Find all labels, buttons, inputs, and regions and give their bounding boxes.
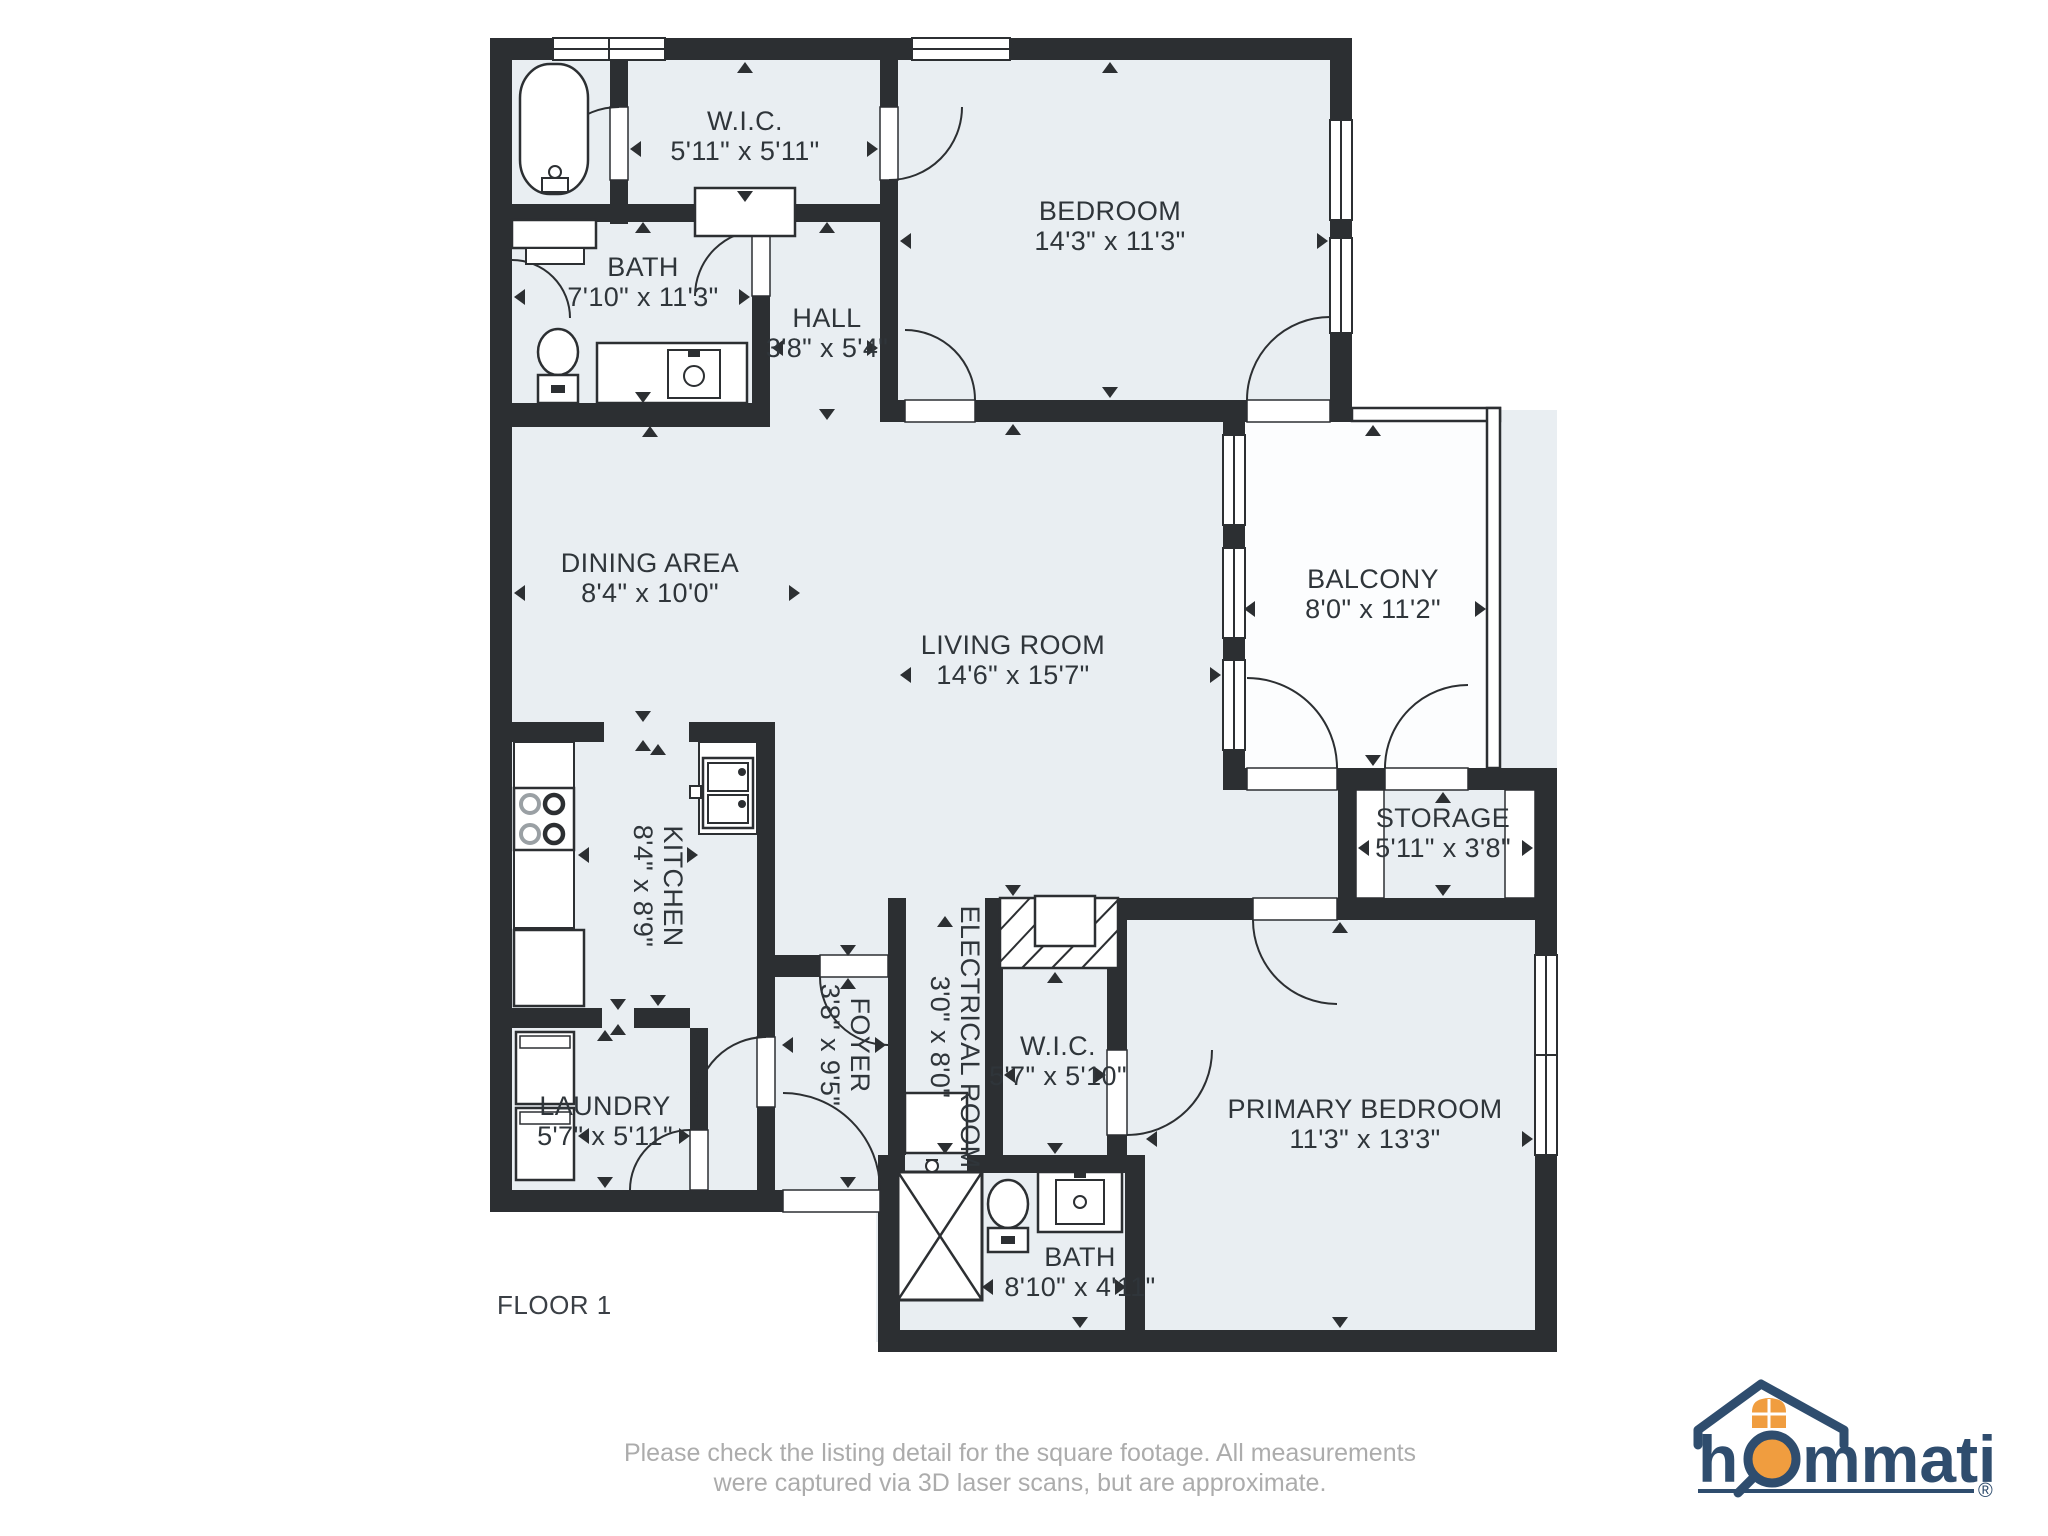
vanity-sink [1038, 1172, 1122, 1232]
kitchen-sink-icon [690, 742, 757, 834]
floorplan-page: h mmati ® W.I.C. 5'11" x 5'11" BEDROOM 1… [0, 0, 2048, 1536]
room-label-dining-area: DINING AREA 8'4" x 10'0" [561, 548, 739, 608]
footer-line-2: were captured via 3D laser scans, but ar… [714, 1469, 1327, 1497]
logo-text-mmati: mmati [1802, 1422, 1996, 1496]
footer-disclaimer: Please check the listing detail for the … [624, 1438, 1416, 1498]
room-label-bath-top: BATH 7'10" x 11'3" [567, 252, 718, 312]
room-label-balcony: BALCONY 8'0" x 11'2" [1305, 564, 1441, 624]
room-dims: 5'11" x 3'8" [1375, 833, 1511, 863]
room-name: LIVING ROOM [921, 630, 1105, 660]
room-label-foyer: FOYER 3'8" x 9'5" [815, 984, 875, 1106]
window-icon [1223, 660, 1245, 750]
room-name: STORAGE [1376, 803, 1510, 833]
room-dims: 5'7" x 5'10" [989, 1061, 1127, 1091]
floor-label: FLOOR 1 [497, 1290, 612, 1321]
logo-magnifier-icon [1738, 1435, 1796, 1493]
room-name: BEDROOM [1039, 196, 1181, 226]
room-dims: 11'3" x 13'3" [1227, 1124, 1502, 1154]
floor-plan-drawing: h mmati ® [0, 0, 2048, 1536]
room-dims: 8'10" x 4'11" [1004, 1272, 1155, 1302]
room-label-electrical-room: ELECTRICAL ROOM 3'0" x 8'0" [925, 905, 985, 1168]
room-dims: 3'8" x 9'5" [815, 984, 845, 1106]
room-label-living-room: LIVING ROOM 14'6" x 15'7" [921, 630, 1105, 690]
bathtub-icon [520, 64, 588, 194]
vanity-sink [597, 343, 747, 403]
room-name: ELECTRICAL ROOM [955, 905, 985, 1168]
footer-line-1: Please check the listing detail for the … [624, 1439, 1416, 1467]
room-label-kitchen: KITCHEN 8'4" x 8'9" [628, 825, 688, 947]
room-label-hall: HALL 3'8" x 5'4" [766, 303, 888, 363]
room-label-storage: STORAGE 5'11" x 3'8" [1375, 803, 1511, 863]
room-dims: 14'6" x 15'7" [921, 660, 1105, 690]
room-name: W.I.C. [707, 106, 783, 136]
window-icon [1223, 548, 1245, 638]
window-icon [553, 38, 665, 60]
room-dims: 5'11" x 5'11" [670, 136, 819, 166]
shower-icon [898, 1160, 982, 1300]
kitchen-counter-left [514, 742, 584, 1006]
room-dims: 14'3" x 11'3" [1034, 226, 1185, 256]
window-icon [1330, 238, 1352, 333]
room-dims: 3'8" x 5'4" [766, 333, 888, 363]
stove-icon [514, 788, 574, 850]
room-name: W.I.C. [1020, 1031, 1096, 1061]
room-name: BALCONY [1307, 564, 1439, 594]
room-label-bath-bottom: BATH 8'10" x 4'11" [1004, 1242, 1155, 1302]
room-label-wic-top: W.I.C. 5'11" x 5'11" [670, 106, 819, 166]
room-name: DINING AREA [561, 548, 739, 578]
room-name: HALL [792, 303, 861, 333]
room-label-primary-bedroom: PRIMARY BEDROOM 11'3" x 13'3" [1227, 1094, 1502, 1154]
toilet-icon [538, 329, 578, 403]
room-name: LAUNDRY [539, 1091, 670, 1121]
room-label-bedroom: BEDROOM 14'3" x 11'3" [1034, 196, 1185, 256]
window-icon [1535, 955, 1557, 1155]
window-icon [1223, 435, 1245, 525]
room-name: FOYER [845, 997, 875, 1092]
window-icon [912, 38, 1010, 60]
logo-registered-mark: ® [1978, 1480, 1993, 1502]
room-name: PRIMARY BEDROOM [1227, 1094, 1502, 1124]
room-dims: 3'0" x 8'0" [925, 905, 955, 1168]
room-dims: 8'0" x 11'2" [1305, 594, 1441, 624]
shaft-hatch [1000, 896, 1118, 968]
logo-text-h: h [1698, 1422, 1738, 1496]
window-icon [1330, 120, 1352, 220]
room-dims: 7'10" x 11'3" [567, 282, 718, 312]
room-dims: 8'4" x 8'9" [628, 825, 658, 947]
room-name: BATH [607, 252, 679, 282]
hommati-logo: h mmati ® [1698, 1384, 1996, 1502]
room-dims: 5'7" x 5'11" [537, 1121, 673, 1151]
room-name: BATH [1044, 1242, 1116, 1272]
room-label-wic-primary: W.I.C. 5'7" x 5'10" [989, 1031, 1127, 1091]
room-dims: 8'4" x 10'0" [561, 578, 739, 608]
room-label-laundry: LAUNDRY 5'7" x 5'11" [537, 1091, 673, 1151]
room-name: KITCHEN [658, 825, 688, 946]
